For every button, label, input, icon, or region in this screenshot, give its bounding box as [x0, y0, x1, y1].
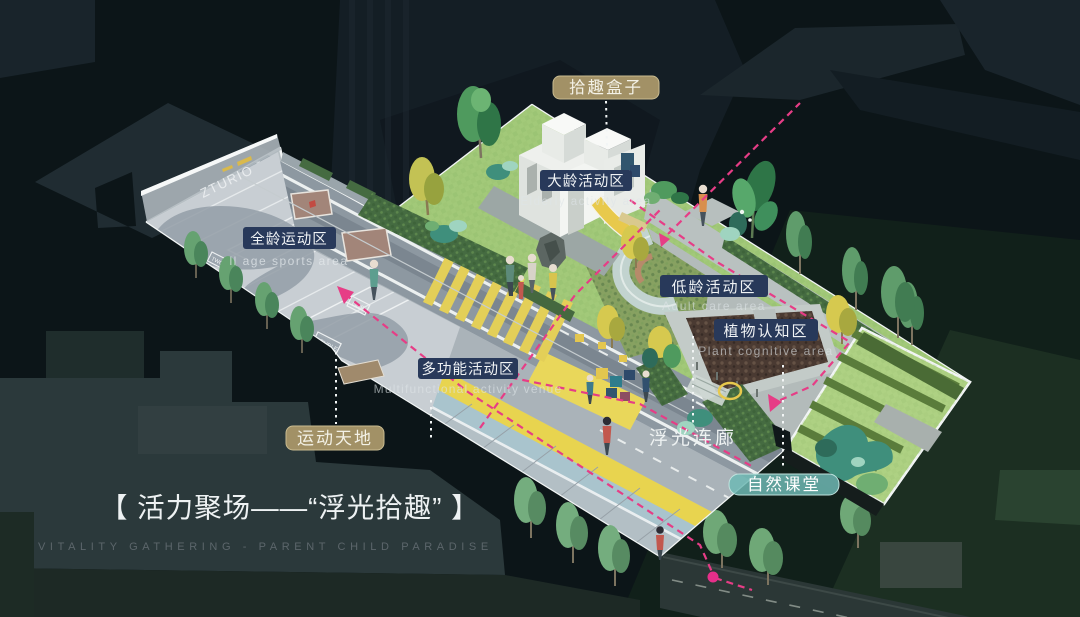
svg-text:全龄运动区: 全龄运动区	[250, 230, 328, 248]
svg-text:浮光连廊: 浮光连廊	[649, 427, 737, 449]
svg-text:拾趣盒子: 拾趣盒子	[569, 78, 643, 97]
svg-text:【 活力聚场——“浮光拾趣” 】: 【 活力聚场——“浮光拾趣” 】	[100, 492, 480, 523]
svg-text:VITALITY GATHERING - PARENT CH: VITALITY GATHERING - PARENT CHILD PARADI…	[38, 541, 493, 553]
svg-text:ll age sports area: ll age sports area	[229, 254, 348, 268]
svg-text:Multifunctional activity venue: Multifunctional activity venue	[374, 382, 563, 396]
svg-text:Elderly activity area: Elderly activity area	[520, 196, 651, 208]
svg-text:自然课堂: 自然课堂	[747, 475, 821, 494]
svg-text:植物认知区: 植物认知区	[723, 323, 808, 340]
svg-text:大龄活动区: 大龄活动区	[547, 173, 625, 190]
svg-text:Plant cognitive area: Plant cognitive area	[698, 344, 833, 358]
svg-text:运动天地: 运动天地	[297, 429, 373, 448]
svg-text:Adult care area: Adult care area	[662, 299, 766, 313]
svg-text:多功能活动区: 多功能活动区	[422, 361, 515, 378]
svg-text:低龄活动区: 低龄活动区	[671, 279, 756, 296]
